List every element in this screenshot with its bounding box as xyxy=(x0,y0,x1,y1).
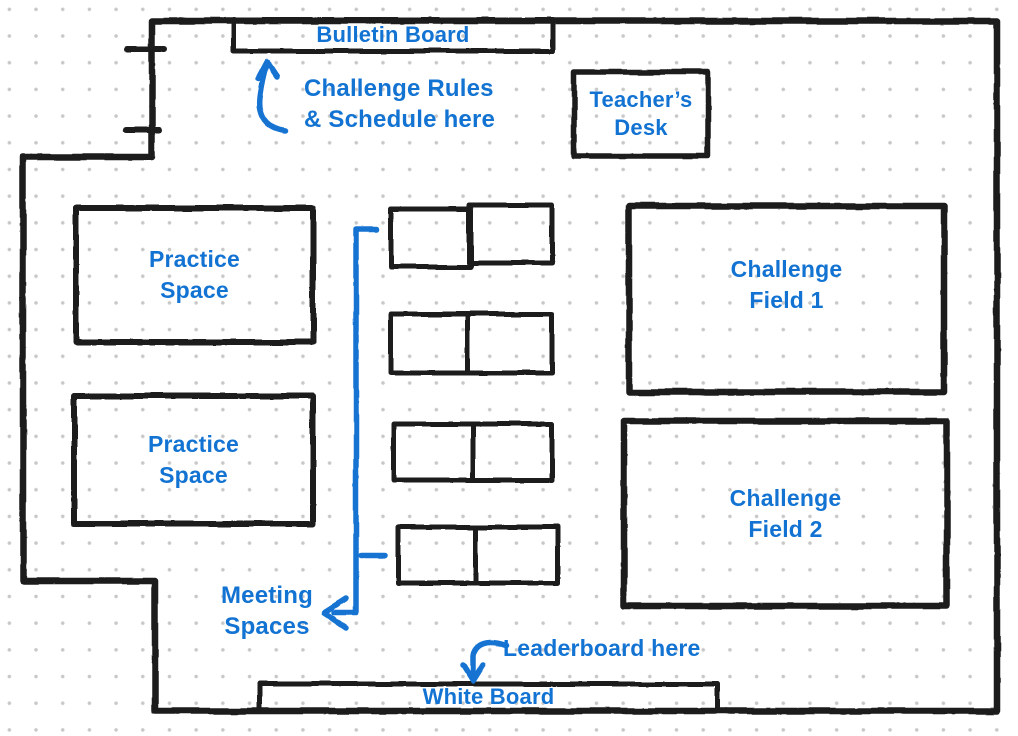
white-board-label: White Board xyxy=(259,683,718,711)
teachers-desk-label: Teacher’s Desk xyxy=(574,72,708,156)
practice-space-2-label: Practice Space xyxy=(74,396,313,524)
challenge-field-1-label: Challenge Field 1 xyxy=(629,206,944,392)
text-layer: Bulletin Board Teacher’s Desk Practice S… xyxy=(0,0,1018,736)
rules-note-label: Challenge Rules & Schedule here xyxy=(304,73,495,135)
leaderboard-note-label: Leaderboard here xyxy=(503,633,701,664)
practice-space-1-label: Practice Space xyxy=(76,208,313,342)
floor-plan-canvas: Bulletin Board Teacher’s Desk Practice S… xyxy=(0,0,1018,736)
challenge-field-2-label: Challenge Field 2 xyxy=(624,421,947,606)
bulletin-board-label: Bulletin Board xyxy=(233,19,553,51)
meeting-spaces-label: Meeting Spaces xyxy=(196,580,338,642)
